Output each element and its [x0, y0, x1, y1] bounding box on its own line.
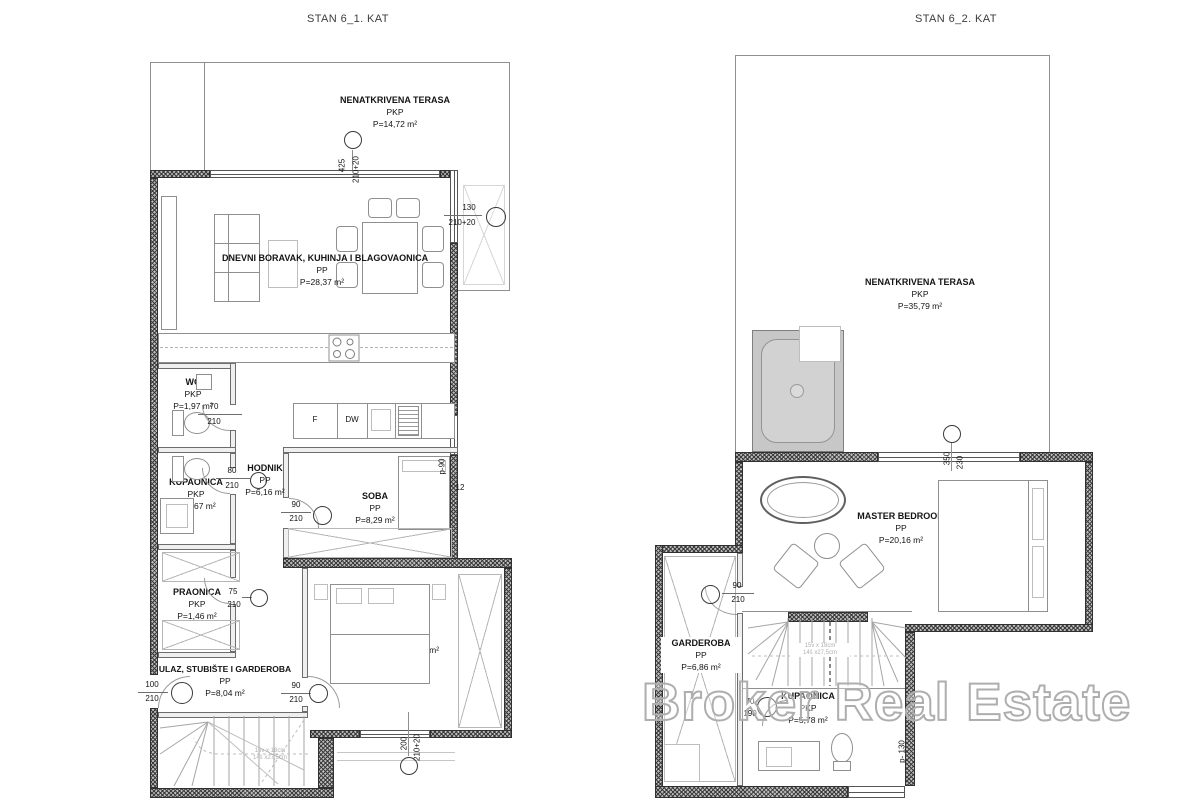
toilet-tank [172, 456, 184, 482]
tv-cabinet [161, 196, 177, 330]
kitchen-sink [371, 409, 391, 431]
dim-circle [309, 684, 328, 703]
room-label-living: DNEVNI BORAVAK, KUHINJA I BLAGOVAONICA P… [222, 252, 422, 288]
plan-title-left: STAN 6_1. KAT [307, 13, 389, 25]
dim-circle [344, 131, 362, 149]
partition-wall [158, 363, 236, 369]
pillow [368, 588, 394, 604]
terrace-lounger [463, 185, 505, 285]
cabinet [398, 406, 419, 436]
chair [336, 226, 358, 252]
chair [422, 226, 444, 252]
watermark: Broker Real Estate [642, 672, 1131, 733]
dim-circle [400, 757, 418, 775]
room-label-terrace-2: NENATKRIVENA TERASA PKP P=35,79 m² [850, 276, 990, 312]
window [210, 170, 440, 178]
stove-icon [328, 334, 360, 362]
pillow [1032, 488, 1044, 540]
dishwasher-label: DW [338, 415, 366, 424]
wardrobe [162, 620, 240, 650]
nightstand [314, 584, 328, 600]
wall-segment [150, 170, 210, 178]
armchair [772, 542, 820, 590]
kitchen-counter [158, 333, 455, 363]
room-label-wardrobe: GARDEROBA PP P=6,86 m² [661, 637, 741, 673]
washbasin [196, 374, 212, 390]
pillow [1032, 546, 1044, 598]
plan-title-right: STAN 6_2. KAT [915, 13, 997, 25]
floor-plan-sheet: STAN 6_1. KAT NENATKRIVENA TERASA PKP P=… [0, 0, 1200, 800]
room-label-room1: SOBA PP P=8,29 m² [345, 490, 405, 526]
dim-circle [171, 682, 193, 704]
dim-circle [250, 589, 268, 607]
room-label-terrace-1: NENATKRIVENA TERASA PKP P=14,72 m² [325, 94, 465, 130]
terrace-table [799, 326, 841, 362]
wardrobe [458, 574, 502, 728]
dim-circle [486, 207, 506, 227]
pillow [336, 588, 362, 604]
chair [422, 262, 444, 288]
cabinet [664, 744, 700, 782]
toilet-tank [172, 410, 184, 436]
armchair [838, 542, 886, 590]
chair [368, 198, 392, 218]
nightstand [432, 584, 446, 600]
dim-circle [313, 506, 332, 525]
stair-note: 15v x 18cm 14š x27,5cm [240, 748, 300, 762]
side-table [814, 533, 840, 559]
stair-note: 15v x 18cm 14š x27,5cm [790, 643, 850, 657]
chair [396, 198, 420, 218]
terrace-outline [735, 55, 1050, 56]
sink [766, 747, 792, 767]
window [848, 786, 905, 798]
toilet-tank [833, 761, 851, 771]
dim-circle [701, 585, 720, 604]
wardrobe [288, 528, 452, 558]
toilet [831, 733, 853, 763]
fridge-label: F [300, 415, 330, 424]
